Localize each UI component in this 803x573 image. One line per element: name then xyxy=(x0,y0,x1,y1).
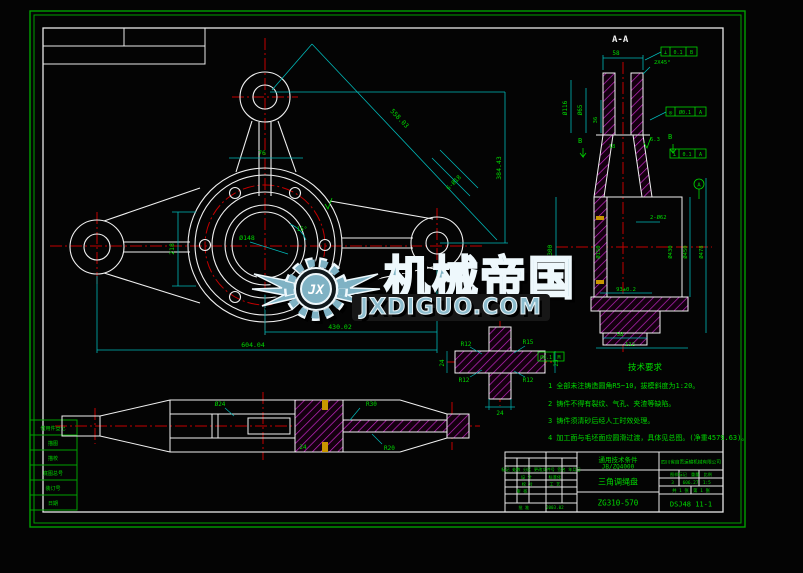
dim-18: 18 xyxy=(609,144,616,150)
roughness-value: 6.3 xyxy=(650,137,660,143)
title-block: 标记 处数 分区 更改文件号 签名 年月日 设 计 标准化 校 对 工 艺 审 … xyxy=(501,452,723,512)
dim-chamfer: 2X45° xyxy=(654,60,671,66)
dim-bore: Ø148 xyxy=(239,234,255,242)
gdt-datum: A xyxy=(699,110,702,116)
dim-b112: 112 xyxy=(625,342,635,348)
revision-row: 校 对 工 艺 xyxy=(522,481,561,488)
dim-d150: Ø150 xyxy=(595,245,602,258)
section-b-arrow xyxy=(580,148,586,157)
cad-drawing: 借用件登记 描图 描校 底图总号 装订号 日期 xyxy=(0,0,803,573)
dim-height: 384.43 xyxy=(495,156,503,180)
dim-holes2: 2-Ø62 xyxy=(650,214,667,221)
gdt-datum: A xyxy=(699,152,702,158)
section-view-aa: A-A xyxy=(547,35,712,352)
centerlines xyxy=(50,38,485,335)
general-spec-code: JB/ZQ4000 xyxy=(602,464,635,471)
section-solids xyxy=(591,73,688,345)
dim-width: 24 xyxy=(496,410,504,417)
revision-row: 审 核 xyxy=(517,488,529,495)
tech-requirements: Ø0.1 M 技术要求 1 全部未注铸造圆角R5~10，拔模斜度为1:20。 2… xyxy=(538,352,748,442)
dim-bolt-holes: 6-Ø18 xyxy=(445,174,463,192)
dim-36: 36 xyxy=(593,117,599,124)
arms xyxy=(70,72,463,303)
dim-dia24: Ø24 xyxy=(215,401,226,408)
revision-row: 设 计 标准化 xyxy=(521,474,562,481)
tech-req-line: 2 铸件不得有裂纹、气孔、夹渣等缺陷。 xyxy=(548,399,675,408)
part-name: 三角调绳盘 xyxy=(598,477,638,487)
dim-top-width: 76 xyxy=(258,149,266,157)
dim-r20: R20 xyxy=(384,445,395,452)
dim-center-right: 430.02 xyxy=(328,323,352,331)
dim-d430: Ø430 xyxy=(667,245,674,258)
stamp-values: 3 606.27 1:5 xyxy=(671,480,711,486)
bottom-view: Ø24 R30 R20 24 xyxy=(55,392,480,460)
dim-r12-br: R12 xyxy=(523,377,534,384)
dim-r12-tl: R12 xyxy=(461,341,472,348)
dim-r30: R30 xyxy=(366,401,377,408)
drawing-number: DSJ48 11-1 xyxy=(670,501,712,509)
tech-req-line: 4 加工面与毛坯面应圆滑过渡，具体见总图。(净重4579.63)。 xyxy=(548,433,748,442)
dim-d450: Ø450 xyxy=(682,245,689,258)
gdt-symbol: ⊥ xyxy=(664,50,668,56)
sheet-count: 共 1 张 第 1 张 xyxy=(672,487,710,494)
strip-label: 描校 xyxy=(48,455,58,462)
dim-overall: 604.04 xyxy=(241,341,265,349)
dim-24: 24 xyxy=(299,444,307,451)
revision-header: 标记 处数 分区 更改文件号 签名 年月日 xyxy=(501,466,581,473)
front-view: 384.43 558.03 430.02 604.04 218 76 Ø148 … xyxy=(50,38,508,353)
gdt-datum: B xyxy=(690,50,693,56)
tech-req-line: 3 铸件须清砂后经人工时效处理。 xyxy=(548,416,654,425)
dim-d300: Ø300 xyxy=(547,244,554,259)
tech-req-title: 技术要求 xyxy=(628,362,663,373)
gdt-value: Ø0.1 xyxy=(540,354,552,361)
gdt-value: 0.1 xyxy=(682,152,691,158)
dim-diagonal: 558.03 xyxy=(388,107,410,130)
gdt-datum: M xyxy=(557,355,560,361)
section-b-label: B xyxy=(578,137,582,145)
dim-angle: 15° xyxy=(297,226,308,233)
gdt-symbol: ⊥ xyxy=(673,152,677,158)
section-b-label: B xyxy=(668,133,672,141)
dim-58: 58 xyxy=(612,50,620,57)
tolerance-frame-1: ⊥ 0.1 B xyxy=(645,47,697,60)
gdt-value: Ø0.1 xyxy=(679,109,691,116)
key-slot xyxy=(322,400,328,410)
tolerance-frame-2: ◎ Ø0.1 A xyxy=(650,107,706,120)
dim-height: 24 xyxy=(439,359,446,367)
strip-label: 装订号 xyxy=(45,485,60,492)
dim-93: 93±0.2 xyxy=(616,287,636,293)
key-slot xyxy=(322,442,328,452)
surface-finish-mark xyxy=(325,198,332,209)
strip-label: 描图 xyxy=(48,440,58,447)
dim-r12-bl: R12 xyxy=(459,377,470,384)
key-slot xyxy=(596,216,604,220)
margin-strip: 借用件登记 描图 描校 底图总号 装订号 日期 xyxy=(30,420,77,510)
dim-d116: Ø116 xyxy=(562,100,569,115)
datum-a-label: A xyxy=(697,183,701,189)
dim-hub-height: 218 xyxy=(168,243,176,255)
strip-label: 日期 xyxy=(48,501,58,507)
dim-b58: 58 xyxy=(617,332,624,338)
tech-req-line: 1 全部未注铸造圆角R5~10，拔模斜度为1:20。 xyxy=(548,381,699,390)
dim-r15-tr: R15 xyxy=(523,339,534,346)
company-name: 四川省自贡运输机械有限公司 xyxy=(661,459,721,466)
dim-d478: Ø478 xyxy=(698,245,705,258)
strip-label: 底图总号 xyxy=(43,470,63,477)
stamp-headers: 图样标记 重量 比例 xyxy=(670,471,712,478)
key-slot xyxy=(596,280,604,284)
gdt-symbol: ◎ xyxy=(669,110,673,116)
revision-row: 批 准 2003.02 xyxy=(518,504,564,511)
section-title: A-A xyxy=(612,35,629,45)
gdt-value: 0.1 xyxy=(673,50,682,56)
dim-d65: Ø65 xyxy=(577,104,584,115)
material: ZG310-570 xyxy=(598,499,639,508)
cad-canvas: 借用件登记 描图 描校 底图总号 装订号 日期 xyxy=(0,0,803,573)
cross-section-detail: R12 R15 R12 R12 24 24 25 xyxy=(439,320,560,417)
